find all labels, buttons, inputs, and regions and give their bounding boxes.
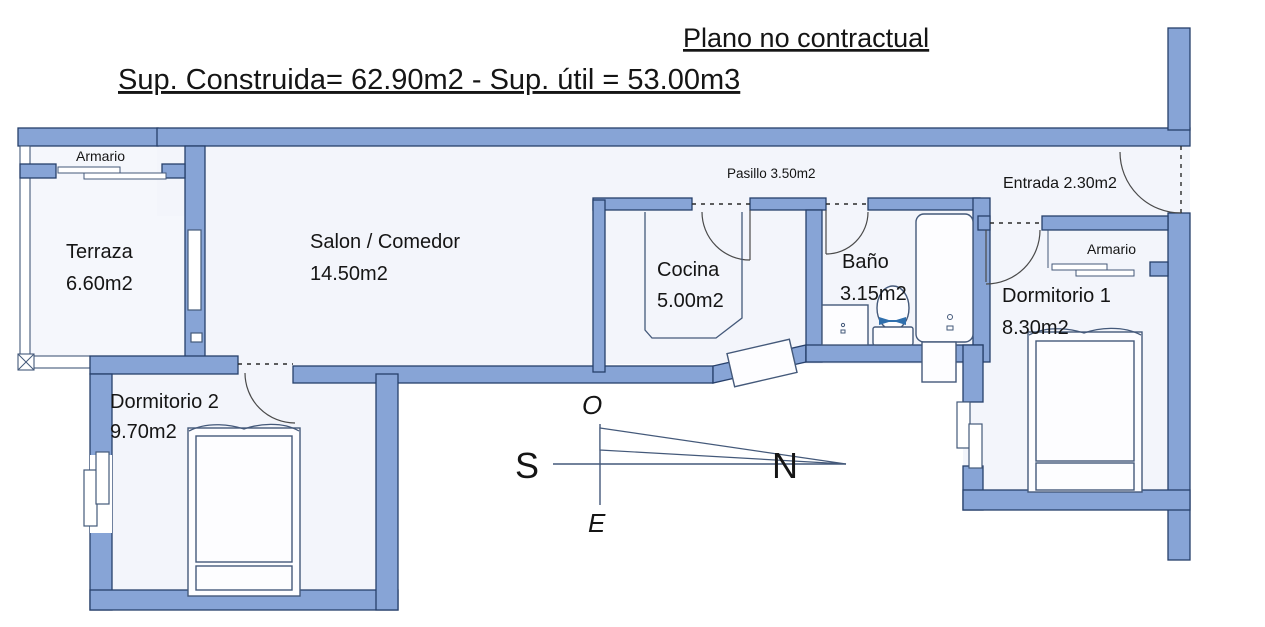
compass-north-label: N bbox=[772, 445, 798, 486]
dormitorio2-area: 9.70m2 bbox=[110, 421, 177, 443]
dormitorio1-area: 8.30m2 bbox=[1002, 317, 1069, 339]
bed-dormitorio2 bbox=[188, 424, 300, 596]
compass: O S N E bbox=[515, 390, 846, 538]
compass-east-label: E bbox=[588, 508, 606, 538]
armario-dorm1-slide-door-2 bbox=[1076, 270, 1134, 276]
dormitorio1-label: Dormitorio 1 bbox=[1002, 285, 1111, 307]
dormitorio2-top-wall bbox=[90, 356, 238, 374]
entrada-label: Entrada 2.30m2 bbox=[1003, 175, 1117, 192]
dormitorio1-top-wall bbox=[1042, 216, 1168, 230]
salon-bottom-wall bbox=[293, 366, 713, 383]
cocina-top-wall bbox=[593, 198, 692, 210]
right-upper-wall bbox=[1168, 28, 1190, 130]
bed-dormitorio1 bbox=[1028, 328, 1142, 492]
salon-label: Salon / Comedor bbox=[310, 231, 460, 253]
armario-dorm1-slide-door-1 bbox=[1052, 264, 1107, 270]
salon-area: 14.50m2 bbox=[310, 263, 388, 285]
terraza-corner-x bbox=[18, 354, 34, 370]
bathtub bbox=[916, 214, 973, 342]
armario-terraza-slide-door-1 bbox=[58, 167, 120, 173]
cocina-label: Cocina bbox=[657, 259, 720, 281]
dormitorio1-window-outer bbox=[957, 402, 970, 448]
terraza-area: 6.60m2 bbox=[66, 273, 133, 295]
compass-south-label: S bbox=[515, 445, 539, 486]
terraza-salon-window-small bbox=[191, 333, 202, 342]
cocina-area: 5.00m2 bbox=[657, 290, 724, 312]
plan-title: Plano no contractual bbox=[683, 23, 929, 53]
dormitorio1-door-stub bbox=[978, 216, 990, 230]
pasillo-label: Pasillo 3.50m2 bbox=[727, 166, 816, 181]
compass-needle bbox=[600, 428, 846, 464]
dormitorio2-window-outer bbox=[84, 470, 97, 526]
bano-label: Baño bbox=[842, 251, 889, 273]
cocina-bano-divider-wall bbox=[806, 210, 822, 362]
floor-plan-canvas: O S N E Plano no contractual Sup. Constr… bbox=[0, 0, 1265, 627]
armario-terraza-left-stub bbox=[20, 164, 56, 178]
floor-plan-svg: O S N E Plano no contractual Sup. Constr… bbox=[0, 0, 1265, 627]
bano-area: 3.15m2 bbox=[840, 283, 907, 305]
compass-west-label: O bbox=[582, 390, 602, 420]
cocina-left-wall bbox=[593, 200, 605, 372]
armario-dorm1-label: Armario bbox=[1087, 241, 1136, 257]
dormitorio2-right-wall bbox=[376, 374, 398, 610]
main-top-wall bbox=[157, 128, 1190, 146]
dormitorio1-bottom-wall bbox=[963, 490, 1190, 510]
terraza-label: Terraza bbox=[66, 241, 134, 263]
dormitorio1-left-wall-upper bbox=[963, 345, 983, 402]
terraza-top-wall bbox=[18, 128, 158, 146]
salon-floor bbox=[205, 146, 595, 374]
armario-terraza-label: Armario bbox=[76, 148, 125, 164]
water-heater bbox=[922, 342, 956, 382]
bano-top-wall bbox=[868, 198, 980, 210]
dormitorio1-window-inner bbox=[969, 424, 982, 468]
armario-terraza-slide-door-2 bbox=[84, 173, 166, 179]
plan-subtitle: Sup. Construida= 62.90m2 - Sup. útil = 5… bbox=[118, 64, 740, 96]
cocina-bano-top-wall bbox=[750, 198, 826, 210]
dormitorio2-window-inner bbox=[96, 452, 109, 504]
terraza-salon-window bbox=[188, 230, 201, 310]
bathroom-sink bbox=[822, 305, 868, 345]
armario-dorm1-right-stub bbox=[1150, 262, 1168, 276]
dormitorio2-label: Dormitorio 2 bbox=[110, 391, 219, 413]
